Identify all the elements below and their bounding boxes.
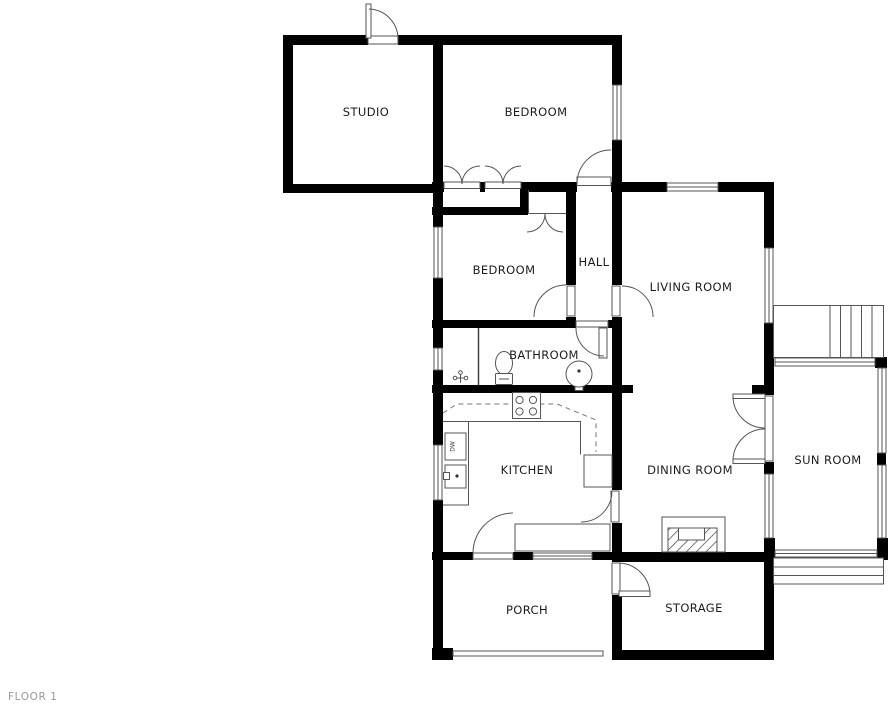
door-bathroom	[576, 321, 608, 358]
room-label-hall: HALL	[579, 255, 610, 269]
window-sunroom-north	[775, 358, 875, 366]
floor-plan-drawing: DW	[0, 0, 894, 711]
stairs-upper	[774, 306, 884, 358]
room-label-porch: PORCH	[506, 603, 548, 617]
stove-fixture	[513, 393, 541, 419]
door-bedroom2-closet	[527, 190, 566, 232]
window-bathroom-west	[434, 348, 442, 370]
window-sunroom-east-upper	[878, 368, 886, 453]
floor-plan: DW STUDIO BEDROOM BEDROOM HALL LIVING RO…	[0, 0, 894, 711]
dishwasher-fixture: DW	[445, 433, 466, 460]
utility-faucet-fixture	[453, 371, 468, 383]
door-bedroom1	[577, 150, 611, 186]
door-bedroom1-closet-left	[444, 166, 480, 189]
window-porch-north	[533, 553, 592, 559]
room-label-living: LIVING ROOM	[650, 280, 733, 294]
floor-label: FLOOR 1	[8, 691, 58, 703]
window-bedroom1-east	[613, 85, 621, 140]
door-living	[612, 286, 653, 317]
room-label-studio: STUDIO	[343, 105, 389, 119]
room-label-bathroom: BATHROOM	[509, 348, 579, 362]
kitchen-sink-fixture	[444, 465, 467, 488]
window-living-north	[667, 183, 718, 191]
door-bedroom2	[534, 285, 575, 317]
window-sunroom-west	[765, 474, 773, 538]
window-kitchen-west	[434, 445, 442, 500]
fireplace-fixture	[662, 517, 725, 552]
window-living-east	[765, 248, 773, 323]
door-bedroom1-closet-right	[485, 166, 521, 189]
room-label-kitchen: KITCHEN	[501, 463, 554, 477]
door-kitchen-porch	[473, 513, 513, 559]
room-label-bedroom-top: BEDROOM	[505, 105, 568, 119]
window-bedroom2-west	[434, 227, 442, 278]
steps-lower	[774, 558, 884, 584]
room-label-dining: DINING ROOM	[647, 463, 733, 477]
doors	[366, 4, 773, 597]
door-french-sunroom	[733, 394, 773, 464]
door-studio-entry	[366, 4, 398, 44]
window-sunroom-south	[775, 550, 877, 557]
dishwasher-label: DW	[450, 441, 457, 452]
door-kitchen-dining	[581, 491, 619, 522]
porch-open-edge	[453, 651, 603, 656]
room-label-bedroom-mid: BEDROOM	[473, 263, 536, 277]
window-sunroom-east-lower	[878, 465, 886, 538]
kitchen-counter	[443, 422, 612, 552]
room-label-sunroom: SUN ROOM	[794, 453, 861, 467]
room-label-storage: STORAGE	[665, 601, 723, 615]
door-storage	[612, 563, 650, 597]
